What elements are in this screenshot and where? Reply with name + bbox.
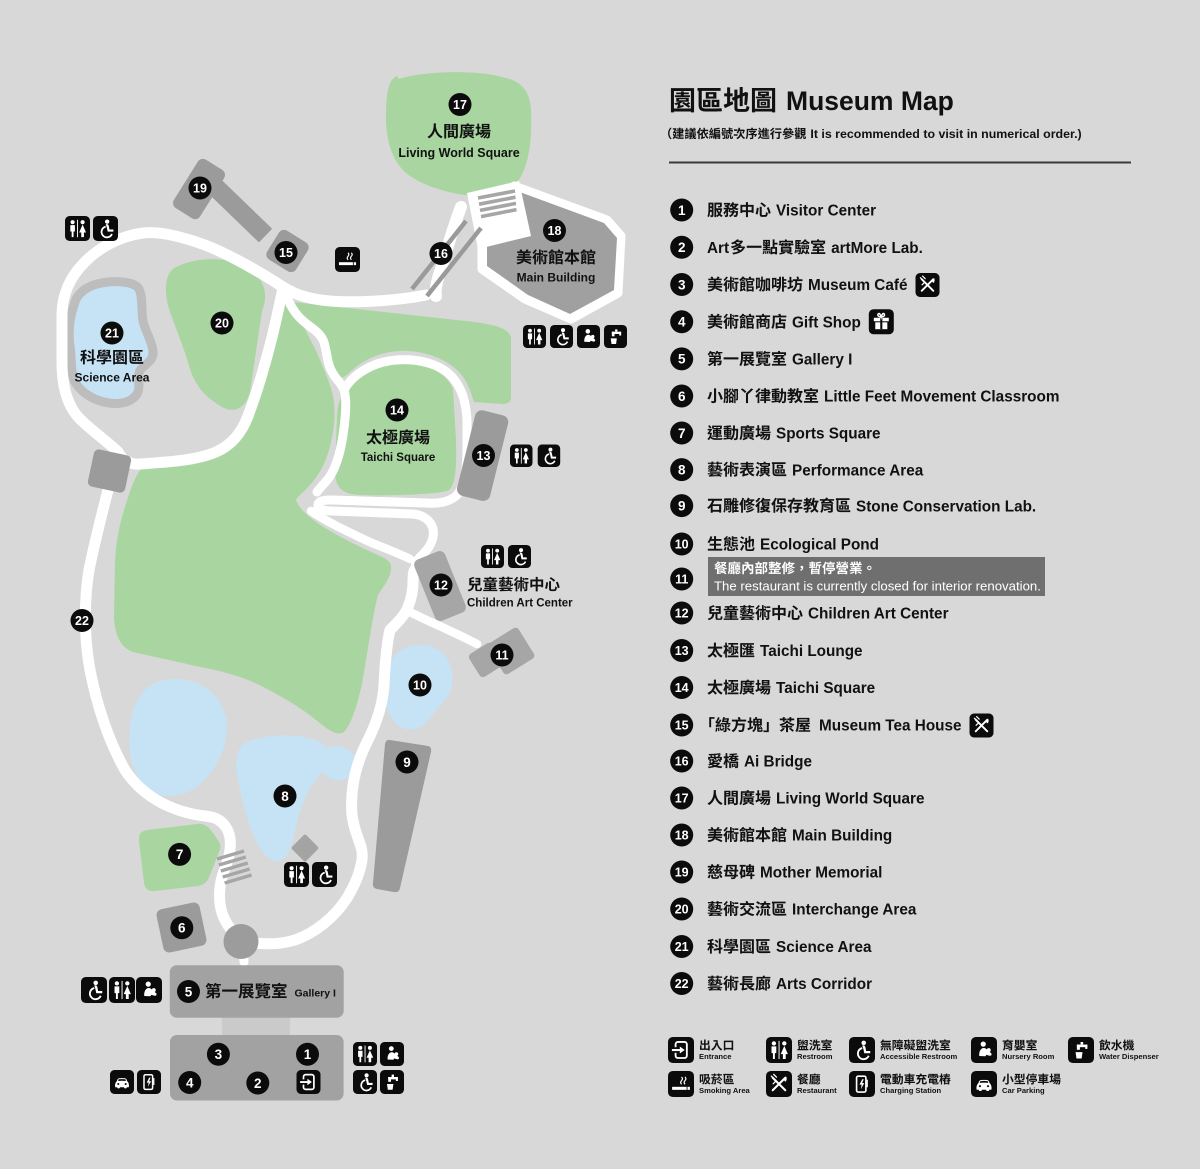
svg-text:It is recommended to visit in: It is recommended to visit in numerical … [810,127,1081,141]
svg-text:Visitor Center: Visitor Center [776,203,876,220]
svg-text:Main Building: Main Building [792,828,892,845]
svg-text:3: 3 [215,1047,223,1062]
svg-text:Taichi Square: Taichi Square [776,680,875,697]
svg-text:Mother Memorial: Mother Memorial [760,865,882,882]
svg-text:17: 17 [675,791,689,805]
svg-text:Taichi Square: Taichi Square [361,452,436,464]
svg-text:Arts Corridor: Arts Corridor [776,976,872,993]
svg-text:18: 18 [675,828,689,842]
svg-text:2: 2 [254,1076,262,1091]
svg-text:Water Dispenser: Water Dispenser [1099,1052,1159,1061]
svg-text:Restroom: Restroom [797,1052,833,1061]
svg-text:7: 7 [176,847,184,862]
svg-text:Entrance: Entrance [699,1052,732,1061]
svg-text:Museum Café: Museum Café [808,277,907,294]
svg-text:10: 10 [675,537,689,551]
svg-text:21: 21 [675,940,689,954]
svg-text:4: 4 [186,1075,194,1090]
svg-text:Science Area: Science Area [776,939,872,956]
svg-text:15: 15 [675,718,689,732]
svg-text:5: 5 [678,352,686,367]
svg-text:artMore Lab.: artMore Lab. [831,240,923,257]
svg-text:20: 20 [215,316,229,330]
svg-text:11: 11 [495,648,508,662]
svg-text:Smoking Area: Smoking Area [699,1086,751,1095]
svg-text:8: 8 [678,462,686,477]
svg-text:Children Art Center: Children Art Center [467,598,573,610]
svg-text:1: 1 [678,203,686,218]
svg-text:Ai Bridge: Ai Bridge [744,754,812,771]
svg-text:Taichi Lounge: Taichi Lounge [760,643,863,660]
svg-text:Science Area: Science Area [75,371,150,385]
svg-text:Ecological Pond: Ecological Pond [760,537,879,554]
svg-text:17: 17 [453,98,467,112]
svg-text:1: 1 [304,1047,312,1062]
svg-text:Car Parking: Car Parking [1002,1086,1045,1095]
svg-text:Main Building: Main Building [517,271,596,285]
svg-text:9: 9 [678,498,686,513]
svg-text:3: 3 [678,277,686,292]
svg-text:12: 12 [675,606,689,620]
svg-text:Gallery I: Gallery I [792,352,852,369]
svg-text:6: 6 [178,921,186,936]
svg-text:Little Feet Movement Classroom: Little Feet Movement Classroom [824,389,1059,406]
svg-text:Interchange Area: Interchange Area [792,902,917,919]
svg-text:13: 13 [477,449,491,463]
svg-text:18: 18 [548,224,562,238]
svg-text:10: 10 [413,678,427,692]
svg-text:Performance Area: Performance Area [792,462,924,479]
svg-text:5: 5 [185,984,193,999]
svg-text:Nursery Room: Nursery Room [1002,1052,1055,1061]
svg-text:Gift Shop: Gift Shop [792,314,861,331]
svg-text:14: 14 [675,681,689,695]
svg-text:14: 14 [390,403,404,417]
svg-text:4: 4 [678,314,686,329]
svg-text:Gallery I: Gallery I [295,988,337,1000]
svg-text:13: 13 [675,644,689,658]
svg-text:21: 21 [105,326,119,340]
svg-text:8: 8 [281,789,289,804]
svg-text:15: 15 [279,246,293,260]
svg-text:11: 11 [675,572,688,586]
svg-text:19: 19 [193,181,207,195]
svg-text:Museum Tea House: Museum Tea House [819,718,962,735]
svg-text:Art: Art [707,240,729,257]
svg-text:Sports Square: Sports Square [776,426,881,443]
svg-text:Accessible Restroom: Accessible Restroom [880,1052,957,1061]
svg-text:16: 16 [675,754,689,768]
svg-text:19: 19 [675,865,689,879]
svg-text:9: 9 [403,755,411,770]
svg-text:Charging Station: Charging Station [880,1086,942,1095]
svg-text:6: 6 [678,389,686,404]
svg-text:Museum Map: Museum Map [786,86,954,116]
svg-text:Children Art Center: Children Art Center [808,606,949,623]
svg-text:22: 22 [675,977,689,991]
svg-text:Living World Square: Living World Square [776,791,924,808]
svg-text:Restaurant: Restaurant [797,1086,837,1095]
svg-text:The restaurant is currently cl: The restaurant is currently closed for i… [714,579,1041,594]
svg-text:20: 20 [675,902,689,916]
svg-text:Living World Square: Living World Square [398,146,519,160]
svg-text:16: 16 [434,247,448,261]
svg-text:7: 7 [678,426,686,441]
svg-text:2: 2 [678,240,686,255]
svg-text:22: 22 [75,614,89,628]
svg-text:Stone Conservation Lab.: Stone Conservation Lab. [856,498,1036,515]
svg-text:12: 12 [434,578,448,592]
